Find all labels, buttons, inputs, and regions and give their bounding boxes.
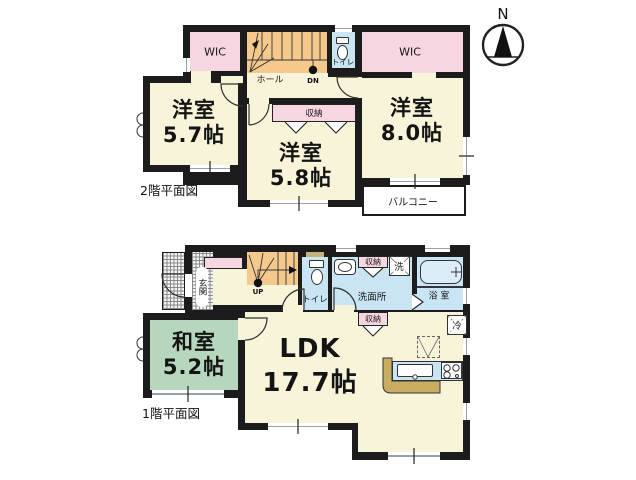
window-2f-toilet xyxy=(335,25,352,32)
room-size: 8.0帖 xyxy=(381,121,443,146)
wall-2f-toilet-bottom xyxy=(328,68,357,77)
opening-2f-room57 xyxy=(221,76,243,83)
wic-left-label: WIC xyxy=(204,46,226,59)
dn-label: DN xyxy=(307,77,319,85)
closet-ldk-label: 収納 xyxy=(365,314,381,325)
room-size: 5.7帖 xyxy=(163,123,225,148)
floor2-caption: 2階平面図 xyxy=(140,180,198,199)
window-ldk-east-upper xyxy=(463,338,470,355)
room-label-ldk: LDK 17.7帖 xyxy=(262,333,357,401)
opening-2f-room58 xyxy=(249,98,269,104)
entrance-hall-floor xyxy=(213,269,247,305)
entrance-porch xyxy=(162,252,185,310)
toilet-shelf xyxy=(306,252,324,257)
opening-2f-wic xyxy=(191,71,211,83)
room-size: 5.2帖 xyxy=(163,355,225,380)
up-label: UP xyxy=(253,288,264,296)
window-washroom-north xyxy=(336,245,356,252)
toilet-1f-label: トイレ xyxy=(302,293,328,305)
room-name: 洋室 xyxy=(381,96,443,121)
window-ldk-south-right xyxy=(388,452,440,460)
washer-char: 洗 xyxy=(393,262,405,273)
window-bath-east xyxy=(463,288,470,304)
window-2f-east xyxy=(463,137,470,175)
toilet-icon-1f-tank xyxy=(309,260,324,268)
washroom-label: 洗面所 xyxy=(358,289,387,303)
opening-bath xyxy=(412,294,417,310)
hall-label: ホール xyxy=(256,73,283,86)
closet-washroom-label: 収納 xyxy=(365,257,381,268)
floor1-caption: 1階平面図 xyxy=(142,403,200,422)
room-name: LDK xyxy=(262,333,357,367)
stairs-2f xyxy=(247,32,327,73)
window-washitsu-south xyxy=(152,390,224,398)
sink-basin-icon xyxy=(338,262,352,272)
kitchen-sink-icon xyxy=(397,364,433,377)
room-size: 17.7帖 xyxy=(262,367,357,401)
room-name: 洋室 xyxy=(270,141,332,166)
bath-label: 浴 室 xyxy=(429,289,450,302)
stove-icon xyxy=(441,362,462,379)
bathtub-icon xyxy=(420,260,462,284)
wall-2f-wicr-bottom-a xyxy=(362,72,412,78)
room-name: 洋室 xyxy=(163,98,225,123)
toilet-icon-2f-tank xyxy=(336,37,349,44)
shoe-cabinet xyxy=(204,257,243,269)
window-ldk-south-left xyxy=(268,423,328,430)
hanging-cabinet-symbol xyxy=(417,336,440,358)
room-name: 和室 xyxy=(163,330,225,355)
opening-2f-room80 xyxy=(355,77,362,98)
room-label-washitsu: 和室 5.2帖 xyxy=(163,330,225,380)
fridge-char: 冷 xyxy=(451,321,463,332)
window-2f-room58 xyxy=(270,200,328,207)
bath-divider xyxy=(417,286,463,288)
window-ldk-east-lower xyxy=(463,403,470,420)
entrance-label: 玄関 xyxy=(196,279,208,296)
room-label-yoshitsu-58: 洋室 5.8帖 xyxy=(270,141,332,191)
opening-washroom xyxy=(334,305,354,313)
wall-2f-wicr-bottom-b xyxy=(436,72,463,78)
opening-hall-ldk xyxy=(283,305,303,313)
closet-2f-label: 収納 xyxy=(305,107,322,119)
window-bath-north xyxy=(425,245,450,252)
washer-label: 洗 xyxy=(393,259,405,273)
room-label-yoshitsu-57: 洋室 5.7帖 xyxy=(163,98,225,148)
window-2f-west xyxy=(183,58,190,72)
window-2f-room57 xyxy=(190,165,230,172)
window-2f-balcony-door xyxy=(390,178,440,185)
room-1f-ldk-lower xyxy=(358,423,463,452)
north-label: N xyxy=(497,5,508,23)
north-arrow-icon xyxy=(483,25,523,65)
balcony-label: バルコニー xyxy=(388,194,438,209)
opening-washitsu xyxy=(238,318,245,340)
opening-entrance-door xyxy=(185,274,192,297)
fridge-label: 冷 xyxy=(451,318,463,332)
room-size: 5.8帖 xyxy=(270,166,332,191)
floorplan-canvas: WIC WIC ホール DN トイレ 収納 洋室 5.7帖 洋室 5.8帖 洋室… xyxy=(0,0,636,480)
room-label-yoshitsu-80: 洋室 8.0帖 xyxy=(381,96,443,146)
wic-right-label: WIC xyxy=(399,46,421,59)
toilet-icon-1f-bowl xyxy=(311,269,323,285)
toilet-2f-label: トイレ xyxy=(332,57,355,68)
stairs-1f xyxy=(247,252,298,285)
